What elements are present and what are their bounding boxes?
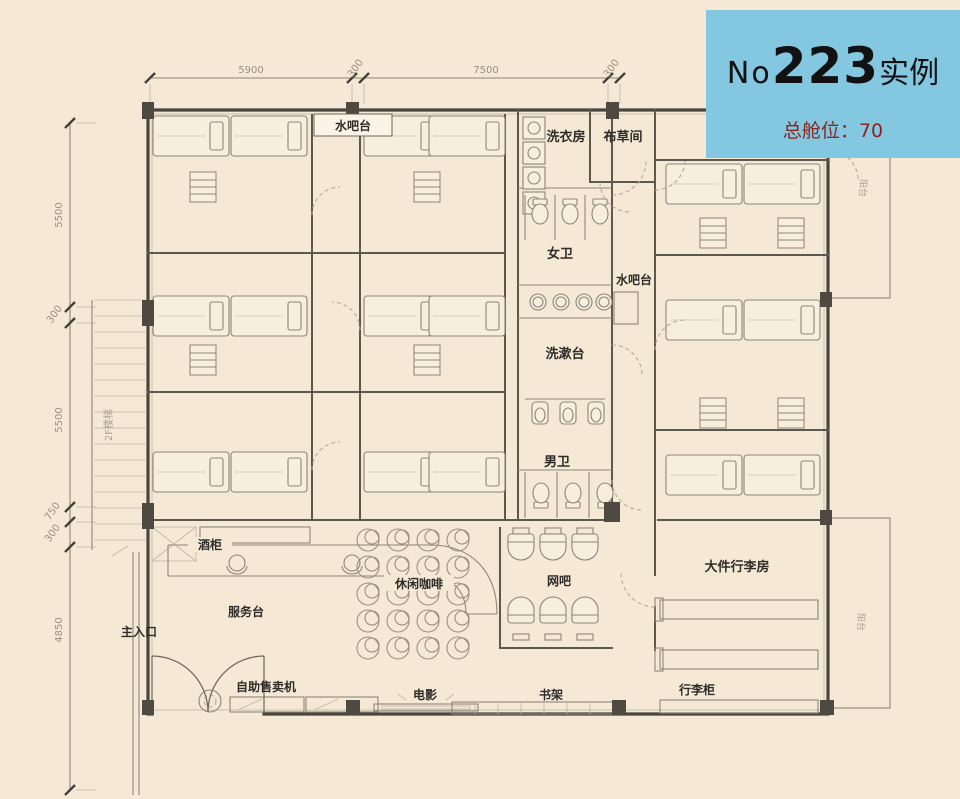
label-balcony-bottom: 阳台: [855, 613, 867, 631]
label-leisure-coffee: 休闲咖啡: [394, 576, 443, 591]
example-badge: No223实例 总舱位：70: [706, 10, 960, 158]
badge-no-prefix: No: [727, 56, 772, 91]
floor-plan-page: 5900 300 7500 300 5500 300 5500 750 300 …: [0, 0, 960, 799]
label-balcony-top: 阳台: [857, 179, 869, 197]
dim-left-5500a: 5500: [54, 202, 65, 227]
label-linen-room: 布草间: [603, 129, 642, 145]
coffee-area: [357, 529, 469, 659]
central-core: [518, 110, 655, 520]
stairs-2f: 2F楼梯: [92, 300, 146, 795]
left-dorm-block: [148, 115, 505, 518]
label-luggage-room: 大件行李房: [704, 559, 769, 575]
label-wine-cabinet: 酒柜: [198, 537, 222, 552]
label-vending-machine: 自助售卖机: [236, 679, 296, 694]
label-womens-toilet: 女卫: [547, 246, 573, 262]
dim-left-750: 750: [43, 501, 63, 523]
badge-number: 223: [772, 37, 879, 95]
badge-capacity: 总舱位：70: [706, 116, 960, 143]
label-internet-cafe: 网吧: [547, 574, 571, 588]
dim-top-7500: 7500: [473, 65, 498, 76]
dim-left-4850: 4850: [54, 617, 65, 642]
public-zone: [148, 520, 828, 650]
label-washing-counter: 洗漱台: [545, 346, 584, 362]
dim-left-300b: 300: [43, 523, 63, 545]
label-laundry-room: 洗衣房: [546, 129, 585, 145]
label-luggage-locker: 行李柜: [678, 682, 715, 697]
dim-top-300a: 300: [346, 58, 366, 80]
label-bookshelf: 书架: [539, 687, 563, 702]
label-mens-toilet: 男卫: [544, 455, 570, 470]
label-stairs-2f: 2F楼梯: [102, 409, 115, 441]
dim-top-300b: 300: [602, 58, 622, 80]
label-movie: 电影: [413, 687, 437, 702]
door-arcs: [152, 160, 685, 712]
dim-top-5900: 5900: [238, 65, 263, 76]
dim-left-5500b: 5500: [54, 407, 65, 432]
dim-left-300a: 300: [45, 304, 65, 326]
dimension-left: 5500 300 5500 750 300 4850: [43, 118, 96, 795]
right-dorm-block: [655, 160, 828, 495]
dimension-top: 5900 300 7500 300: [145, 58, 625, 104]
balconies: 阳台 阳台: [828, 118, 890, 708]
label-water-bar-mid: 水吧台: [616, 272, 652, 287]
badge-title: No223实例: [706, 40, 960, 104]
label-main-entrance: 主入口: [121, 624, 157, 639]
label-water-bar-top: 水吧台: [335, 118, 371, 133]
label-service-desk: 服务台: [228, 604, 264, 619]
badge-suffix: 实例: [879, 56, 939, 91]
